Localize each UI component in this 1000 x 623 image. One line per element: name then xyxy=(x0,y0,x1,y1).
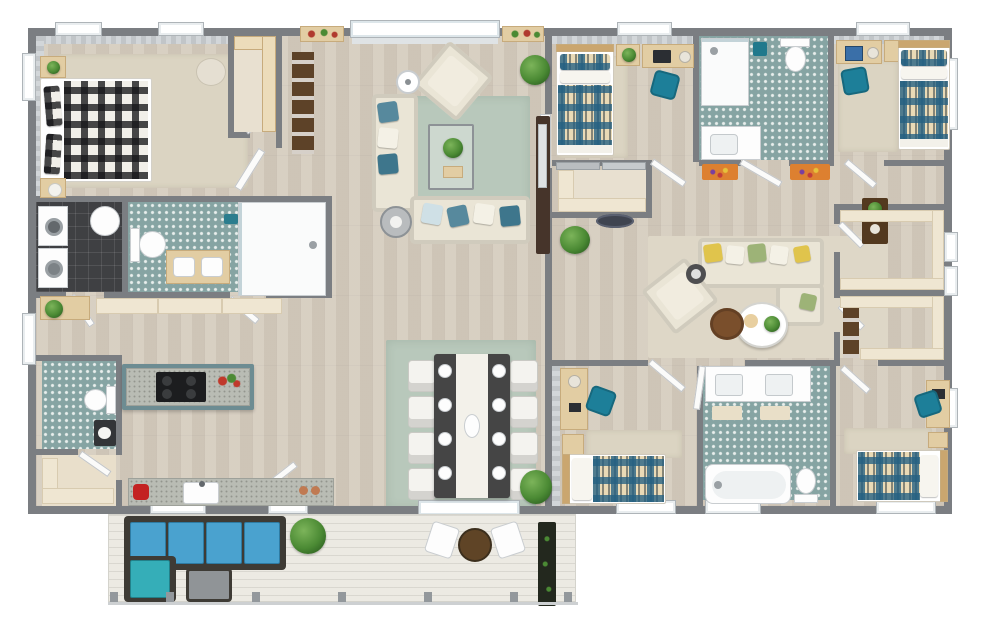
bath2-toilet xyxy=(785,46,806,72)
railing-post xyxy=(252,592,260,602)
window-closet-a xyxy=(944,232,958,262)
coffee-table xyxy=(428,124,474,190)
bath2-bed3-wall xyxy=(828,36,834,162)
laundry-bath-wall xyxy=(122,202,128,292)
pillow-lightblue xyxy=(420,202,443,225)
hall-oval-rug xyxy=(596,214,634,228)
bedroom2-duvet xyxy=(558,85,612,147)
hall-bookshelf xyxy=(843,300,859,358)
bath2-teal-bin xyxy=(753,42,767,56)
closet-a-shelf-bottom xyxy=(840,278,944,290)
powder-vanity xyxy=(94,420,116,446)
closet-b-shelf-bottom xyxy=(860,348,944,360)
flower-box-left xyxy=(300,26,344,42)
window-master-2 xyxy=(158,22,204,36)
powder-bottom-wall xyxy=(36,449,78,455)
window-bedroom3 xyxy=(856,22,910,36)
place-setting xyxy=(492,398,506,412)
pillow-teal xyxy=(377,101,400,124)
bistro-table xyxy=(458,528,492,562)
pillow-teal xyxy=(446,204,470,228)
living-sofa-vertical xyxy=(372,94,418,212)
washer xyxy=(38,206,68,246)
railing-post xyxy=(110,592,118,602)
pillow-green xyxy=(799,293,818,312)
bedroom2-nightstand xyxy=(616,44,640,66)
place-setting xyxy=(438,432,452,446)
pillow-cream xyxy=(725,245,745,265)
kitchen-side-cabinet xyxy=(40,296,90,320)
master-right-wall xyxy=(276,36,282,148)
cabinet-plant xyxy=(45,300,63,318)
desk-items xyxy=(569,403,581,412)
hall-closet-slider-2[interactable] xyxy=(602,162,646,170)
pillow-cream xyxy=(769,245,789,265)
kitchen-counter xyxy=(128,478,334,506)
master-bed xyxy=(40,78,152,182)
main-bath-vanity xyxy=(166,250,230,284)
dining-chair xyxy=(408,468,436,500)
towel-shelf xyxy=(292,52,314,154)
flower-box-right xyxy=(502,26,544,42)
dining-chair xyxy=(510,360,538,392)
bedroom3-chair xyxy=(840,66,870,96)
coffee-table-tray xyxy=(443,166,463,178)
window-bedroom2 xyxy=(617,22,672,36)
family-ottoman xyxy=(710,308,744,340)
deck-planter-box xyxy=(538,522,556,606)
front-door-step xyxy=(352,38,498,44)
bath-mat-1 xyxy=(712,406,742,420)
place-setting xyxy=(438,398,452,412)
dining-table xyxy=(434,354,510,498)
closet-b-shelf-top xyxy=(840,296,944,308)
railing-post xyxy=(338,592,346,602)
kitchen-cabinet-run xyxy=(96,298,282,314)
bedroom2-pillow xyxy=(560,54,610,70)
window-closet-b xyxy=(944,266,958,296)
window-master-1 xyxy=(55,22,102,36)
bath2-shower xyxy=(701,38,749,106)
bathtub xyxy=(705,464,791,504)
centerpiece-bowl xyxy=(464,414,480,438)
pantry-shelf-bottom xyxy=(42,488,114,504)
place-setting xyxy=(438,466,452,480)
master-duvet xyxy=(64,81,148,179)
terracotta-jar-1 xyxy=(299,486,308,495)
dining-chair xyxy=(408,432,436,464)
dining-chair xyxy=(408,396,436,428)
living-sofa-horizontal xyxy=(410,196,530,244)
family-table-bowl xyxy=(744,314,758,328)
master-nightstand-2 xyxy=(40,178,66,198)
pillow-cream xyxy=(377,127,399,149)
bedroom4-duvet xyxy=(593,456,664,502)
vegetable-basket xyxy=(216,372,242,390)
powder-toilet-tank xyxy=(106,386,116,414)
tv xyxy=(538,124,547,188)
master-pouf xyxy=(196,58,226,86)
dining-chair xyxy=(408,360,436,392)
bed3-bottom-wall xyxy=(884,160,944,166)
hall-runner-rug-1 xyxy=(702,164,738,180)
bedroom5-nightstand xyxy=(928,432,948,448)
bath-mat-2 xyxy=(760,406,790,420)
bedroom4-bed xyxy=(562,454,666,504)
bath3-toilet xyxy=(796,468,816,494)
bath3-bed5-wall xyxy=(830,366,836,506)
bedroom2-bed xyxy=(556,44,614,156)
bedroom3-duvet xyxy=(900,81,948,141)
master-pillow-1 xyxy=(43,85,62,126)
closet-a-shelf-top xyxy=(840,210,944,222)
pillow-cream xyxy=(473,203,496,226)
hall-plant xyxy=(560,226,590,254)
dining-chair xyxy=(510,432,538,464)
deck-plant xyxy=(290,518,326,554)
floor-lamp xyxy=(396,70,420,94)
side-table xyxy=(380,206,412,238)
bedroom2-pillow-white xyxy=(560,71,610,83)
front-sliding-door[interactable] xyxy=(350,20,500,38)
bedroom4-accent-wall xyxy=(552,366,560,506)
laptop xyxy=(653,50,671,63)
bath-right-wall xyxy=(326,196,332,298)
master-accent-wall xyxy=(36,36,228,44)
pillow-yellow xyxy=(793,245,812,264)
living-plant xyxy=(520,55,550,85)
window-master-left xyxy=(22,53,36,101)
laptop xyxy=(845,46,863,61)
main-bath-toilet xyxy=(139,231,166,258)
bed4-top-wall xyxy=(552,360,648,366)
family-sofa xyxy=(698,238,824,288)
deck-rail xyxy=(108,602,578,605)
family-side-table xyxy=(686,264,706,284)
bath2-vanity xyxy=(701,126,761,160)
pillow-teal-dark xyxy=(377,153,399,175)
hall-closet-right-wall xyxy=(646,166,652,214)
pillow-green xyxy=(747,243,767,263)
coffee-table-plant xyxy=(443,138,463,158)
bath3-toilet-tank xyxy=(794,494,818,503)
bedroom4-desk xyxy=(560,368,588,430)
terracotta-jar-2 xyxy=(311,486,320,495)
railing-post xyxy=(166,592,174,602)
deck-ottoman xyxy=(186,568,232,602)
bedroom5-duvet xyxy=(858,452,920,500)
hall-closet-shelf-bottom xyxy=(558,198,646,212)
tub-faucet xyxy=(714,481,722,489)
powder-top-wall xyxy=(36,355,122,361)
kitchen-sink xyxy=(183,482,219,504)
pillow-yellow xyxy=(703,243,723,263)
railing-post xyxy=(424,592,432,602)
stand-mixer xyxy=(133,484,149,500)
dining-plant xyxy=(520,470,552,504)
railing-post xyxy=(510,592,518,602)
master-nightstand-1 xyxy=(40,56,66,78)
place-setting xyxy=(438,364,452,378)
hall-closet-slider-1[interactable] xyxy=(556,162,600,170)
railing-post xyxy=(564,592,572,602)
hall-runner-rug-2 xyxy=(790,164,830,180)
bedroom2-desk xyxy=(642,44,694,68)
bed5-top-wall-b xyxy=(878,360,952,366)
master-pillow-2 xyxy=(44,133,63,174)
master-closet-bench-side xyxy=(262,36,276,132)
place-setting xyxy=(492,466,506,480)
bedroom3-pillow xyxy=(901,50,947,66)
walk-in-shower xyxy=(238,202,326,296)
side-door-left[interactable] xyxy=(22,313,36,365)
bedroom4-pillow xyxy=(572,458,592,500)
bedroom3-pillow-white xyxy=(901,67,947,79)
bedroom5-pillow xyxy=(920,455,938,497)
dining-chair xyxy=(510,396,538,428)
bath3-vanity xyxy=(705,366,811,402)
dryer xyxy=(38,248,68,288)
family-table-plant xyxy=(764,316,780,332)
bedroom3-bed xyxy=(898,40,950,150)
bedroom2-accent-wall xyxy=(552,36,693,44)
bedroom3-desk xyxy=(836,40,882,64)
bedroom5-bed xyxy=(856,450,948,502)
pantry-right-wall xyxy=(116,480,122,506)
place-setting xyxy=(492,432,506,446)
closets-left-wall-c xyxy=(834,332,840,360)
powder-toilet xyxy=(84,389,107,411)
teal-towel xyxy=(224,214,238,224)
kitchen-island xyxy=(122,364,254,410)
pillow-teal-dark xyxy=(499,205,521,227)
place-setting xyxy=(492,364,506,378)
laundry-hamper xyxy=(90,206,120,236)
floor-plan xyxy=(0,0,1000,623)
cooktop xyxy=(156,372,206,402)
window-bedroom5 xyxy=(876,500,936,514)
